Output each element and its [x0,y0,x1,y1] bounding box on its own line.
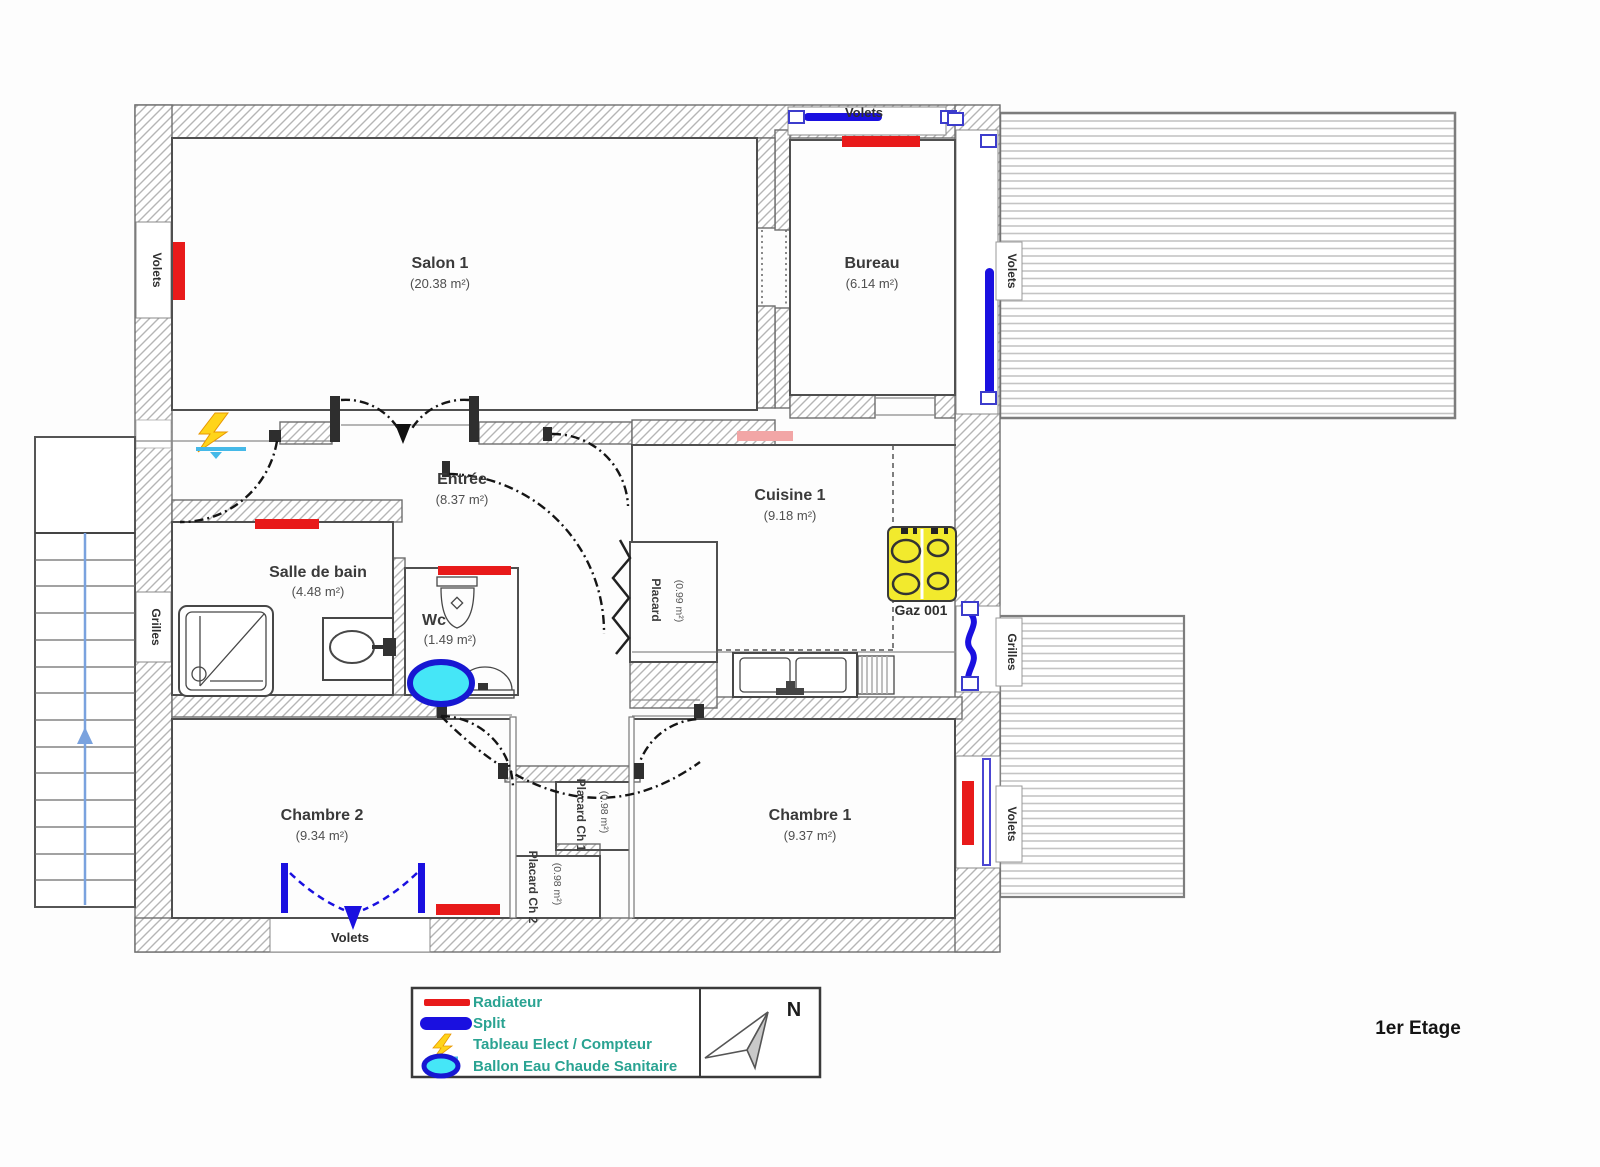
window-handle [789,111,804,123]
placard-entree-label: Placard [649,578,663,621]
cuisine-door-arc [552,434,628,506]
radiator-chambre1 [962,781,974,845]
radiator-chambre2 [436,904,500,915]
split-bureau-right [985,268,994,396]
radiator-salon [173,242,185,300]
volets-label-bureau-top: Volets [845,105,883,120]
staircase [35,437,135,907]
radiator-bathroom [255,519,319,529]
radiator-cuisine [737,431,793,441]
kitchen-worktop-dashed [717,445,893,662]
chambre1-label: Chambre 1 [769,807,852,824]
placard-post-left [498,763,508,779]
stair-door-opening [136,420,171,448]
salon-door-post-right [469,396,479,442]
legend-split-swatch [420,1017,472,1030]
placard-entree-area: (0.99 m²) [673,580,685,623]
window-handle [962,677,978,690]
wc-area: (1.49 m²) [424,632,477,647]
legend-radiator-label: Radiateur [473,994,542,1011]
legend-ballon-swatch [424,1056,458,1076]
bureau-area: (6.14 m²) [846,276,899,291]
bureau-label: Bureau [844,255,899,272]
placard-ch1-box [556,782,632,850]
floor-plan-page: Salon 1 (20.38 m²) Bureau (6.14 m²) Entr… [0,0,1600,1167]
chambre1-door-arc [637,719,700,772]
chambre1-area: (9.37 m²) [784,828,837,843]
grilles-label-kitchen: Grilles [1005,633,1019,671]
cuisine-door-post [543,427,552,441]
kitchen-sink [733,653,857,697]
electrical-panel [196,413,246,459]
sdb-area: (4.48 m²) [292,584,345,599]
gas-stove [888,527,956,601]
legend-tableau-label: Tableau Elect / Compteur [473,1036,652,1053]
placard-ch1-area: (0.98 m²) [598,791,610,834]
placard-ch1-label: Placard Ch 1 [574,779,588,852]
salon-outline [172,138,757,410]
volets-label-chambre1: Volets [1005,806,1019,841]
window-handle [981,135,996,147]
room-labels: Salon 1 (20.38 m²) Bureau (6.14 m²) Entr… [269,255,899,924]
chambre2-right-wall [510,717,516,918]
roof-bottom-right [1000,616,1184,897]
wc-label: Wc [422,612,446,629]
volets-label-bureau-right: Volets [1005,253,1019,288]
volets-label-chambre2: Volets [331,930,369,945]
volets-label-salon: Volets [150,252,164,287]
salon-door-post-left [330,396,340,442]
radiator-wc [438,566,511,575]
bathroom-sink [323,618,396,680]
legend-split-label: Split [473,1015,506,1032]
gaz-label: Gaz 001 [895,602,948,618]
floor-plan-canvas: Salon 1 (20.38 m²) Bureau (6.14 m²) Entr… [0,0,1600,1167]
floor-title: 1er Etage [1375,1018,1461,1039]
chambre1-left-wall [629,717,634,918]
chambre2-label: Chambre 2 [281,807,364,824]
roof-areas [1000,113,1455,897]
cuisine-area: (9.18 m²) [764,508,817,523]
legend-radiator-swatch [424,999,470,1006]
north-label: N [787,999,801,1021]
placard-ch2-area: (0.98 m²) [551,863,563,906]
window-handle [948,113,963,125]
window-handle [981,392,996,404]
doors [180,396,704,798]
fixtures [179,413,956,704]
salon-bureau-opening-dotted [762,230,786,306]
legend: Radiateur Split Tableau Elect / Compteur… [412,988,820,1077]
salon-label: Salon 1 [412,255,469,272]
window-handle [962,602,978,615]
entree-door-post [269,430,281,442]
wall-break-zigzag [613,540,630,654]
cuisine-label: Cuisine 1 [754,487,825,504]
sdb-label: Salle de bain [269,564,367,581]
placard-post-right [634,763,644,779]
legend-ballon-label: Ballon Eau Chaude Sanitaire [473,1058,677,1075]
water-heater-ballon [410,662,472,704]
radiator-bureau [842,136,920,147]
entree-label: Entrée [437,471,487,488]
entree-area: (8.37 m²) [436,492,489,507]
roof-top-right [1000,113,1455,418]
salon-area: (20.38 m²) [410,276,470,291]
chambre1-door-leaf [694,704,704,718]
placard-ch2-label: Placard Ch 2 [526,851,540,924]
kitchen-draining-board [858,656,894,694]
shower [179,606,273,696]
grilles-label-bathroom: Grilles [149,608,163,646]
chambre2-area: (9.34 m²) [296,828,349,843]
